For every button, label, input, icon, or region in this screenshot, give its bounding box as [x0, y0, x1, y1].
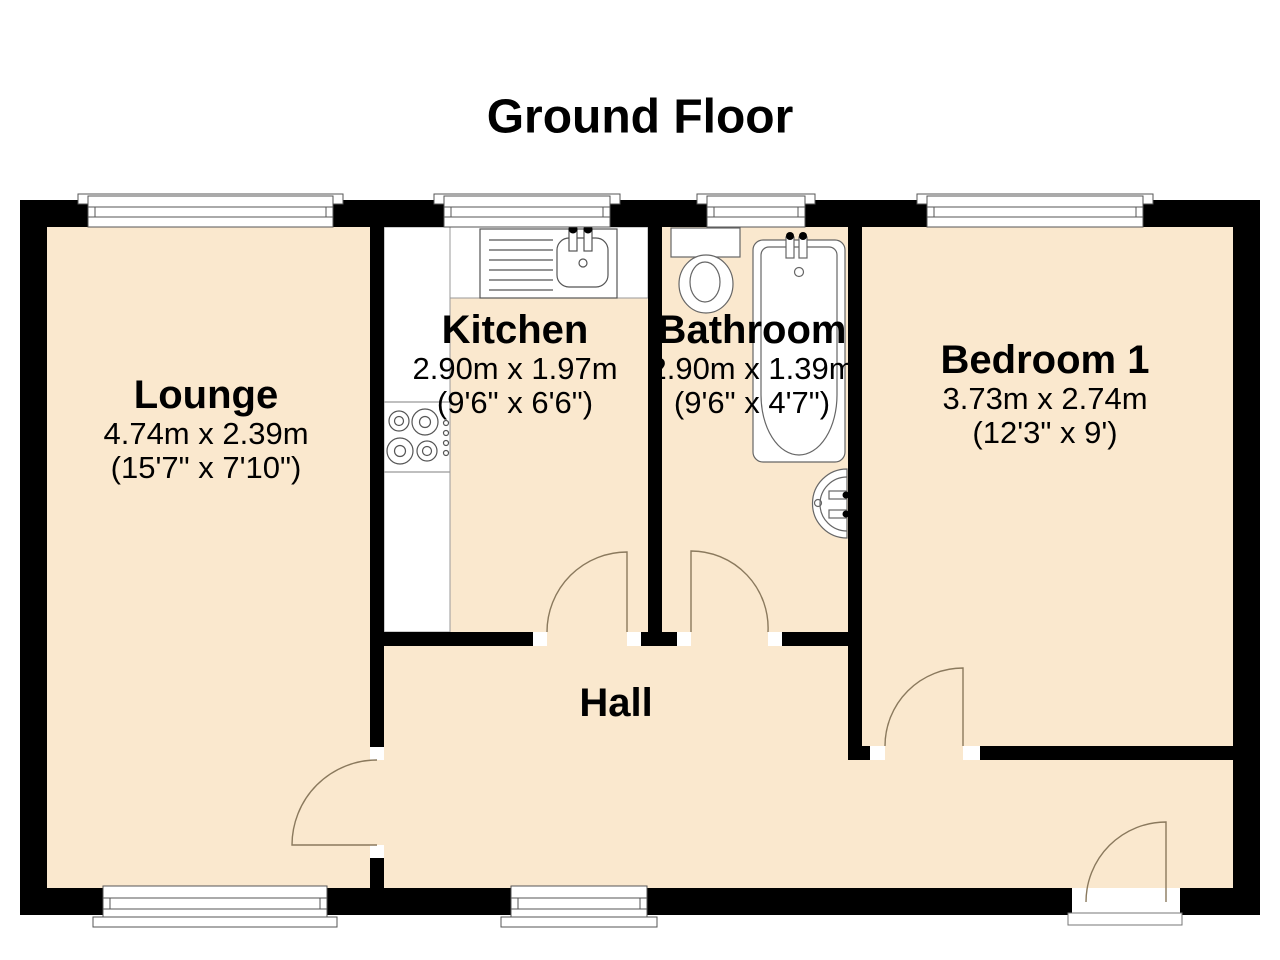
room-dim-metric: 2.90m x 1.39m [649, 352, 854, 386]
window-hall-bottom [501, 886, 657, 927]
window-lounge-bottom [93, 886, 337, 927]
wall-exterior-right [1233, 200, 1260, 915]
room-name: Bathroom [649, 308, 854, 352]
room-label-bedroom1: Bedroom 1 3.73m x 2.74m (12'3" x 9') [941, 338, 1150, 450]
entrance-threshold [1068, 888, 1182, 925]
room-name: Lounge [103, 373, 308, 417]
wall-kitchen-bath-base [641, 632, 677, 646]
wall-bedroom-hall [980, 746, 1233, 760]
room-label-bathroom: Bathroom 2.90m x 1.39m (9'6" x 4'7") [649, 308, 854, 420]
floorplan-page: Ground Floor Lounge 4.74m x 2.39m (15'7"… [0, 0, 1280, 960]
room-dim-imperial: (15'7" x 7'10") [103, 451, 308, 485]
room-dim-metric: 4.74m x 2.39m [103, 417, 308, 451]
page-title: Ground Floor [487, 90, 794, 145]
room-name: Hall [579, 681, 652, 725]
wall-bedroom-corner [862, 746, 870, 760]
wall-lounge-stub [370, 858, 384, 888]
window-bathroom-top [697, 194, 815, 227]
wall-exterior-left [20, 200, 47, 915]
room-name: Bedroom 1 [941, 338, 1150, 382]
room-dim-metric: 2.90m x 1.97m [412, 352, 617, 386]
room-dim-metric: 3.73m x 2.74m [941, 382, 1150, 416]
room-dim-imperial: (9'6" x 4'7") [649, 386, 854, 420]
wall-kitchen-bathroom [648, 227, 662, 632]
room-dim-imperial: (12'3" x 9') [941, 416, 1150, 450]
room-label-kitchen: Kitchen 2.90m x 1.97m (9'6" x 6'6") [412, 308, 617, 420]
room-label-hall: Hall [579, 681, 652, 725]
room-dim-imperial: (9'6" x 6'6") [412, 386, 617, 420]
floor-area [47, 227, 1233, 888]
wall-kitchen-hall [384, 632, 533, 646]
room-name: Kitchen [412, 308, 617, 352]
window-kitchen-top [434, 194, 620, 227]
room-label-lounge: Lounge 4.74m x 2.39m (15'7" x 7'10") [103, 373, 308, 485]
kitchen-sink-icon [480, 225, 617, 299]
window-lounge-top [78, 194, 343, 227]
wall-lounge-kitchen [370, 227, 384, 747]
wall-bathroom-bedroom [848, 227, 862, 760]
window-bedroom-top [917, 194, 1153, 227]
